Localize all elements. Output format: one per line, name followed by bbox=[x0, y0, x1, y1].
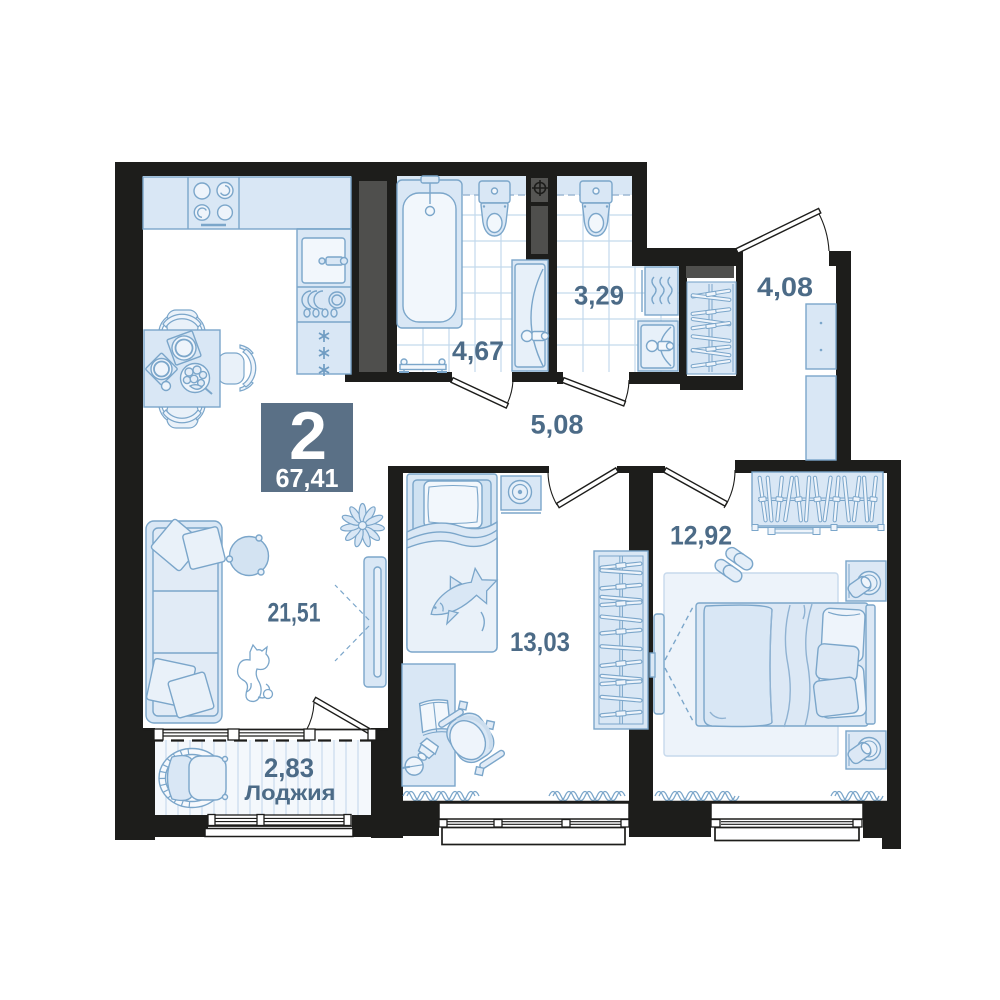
svg-text:4,67: 4,67 bbox=[452, 336, 504, 366]
svg-text:21,51: 21,51 bbox=[268, 598, 321, 628]
svg-text:67,41: 67,41 bbox=[276, 463, 339, 493]
svg-text:3,29: 3,29 bbox=[574, 281, 624, 311]
svg-text:2,83: 2,83 bbox=[264, 753, 314, 783]
svg-text:13,03: 13,03 bbox=[510, 627, 570, 657]
svg-text:4,08: 4,08 bbox=[757, 272, 813, 302]
svg-text:12,92: 12,92 bbox=[670, 521, 732, 551]
svg-text:5,08: 5,08 bbox=[531, 410, 584, 440]
svg-text:Лоджия: Лоджия bbox=[245, 782, 336, 805]
